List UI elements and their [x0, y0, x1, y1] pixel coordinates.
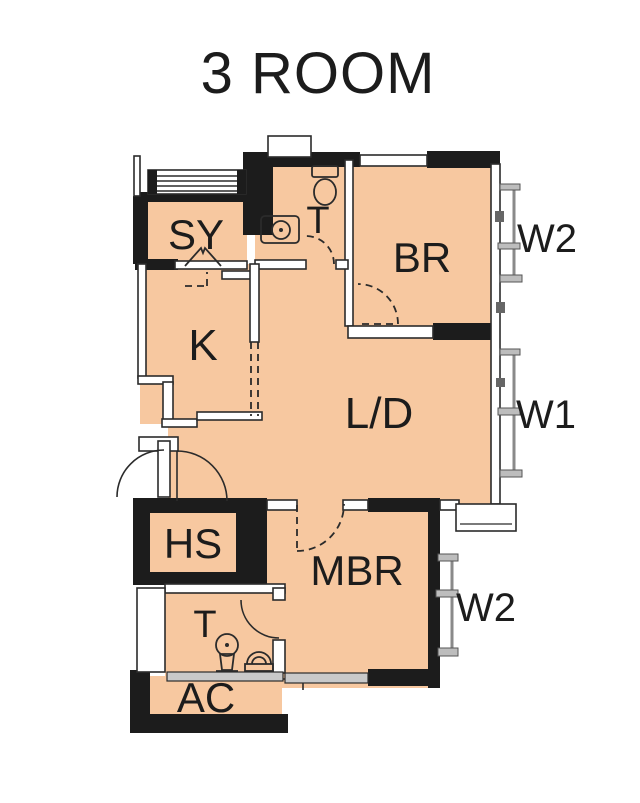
- window-label-w2-top: W2: [517, 217, 577, 261]
- entrance-outswing-arc: [117, 450, 164, 497]
- plan-title: 3 ROOM: [201, 41, 436, 106]
- window-label-w2-bottom: W2: [456, 586, 516, 630]
- room-label-kitchen: K: [188, 321, 217, 370]
- closet-box: [137, 588, 165, 672]
- room-label-toilet-bottom: T: [193, 604, 216, 646]
- room-label-hose-reel: HS: [164, 520, 222, 567]
- room-label-ac: AC: [177, 674, 235, 721]
- floor-plan-page: 3 ROOM SY T BR K L/D HS MBR T AC W2 W1 W…: [0, 0, 640, 803]
- room-label-toilet-top: T: [306, 200, 329, 242]
- room-label-bedroom: BR: [393, 234, 451, 281]
- room-label-sy: SY: [168, 211, 224, 258]
- high-window-box: [268, 136, 311, 157]
- room-label-living-dining: L/D: [345, 389, 413, 438]
- window-label-w1: W1: [516, 393, 576, 437]
- ac-ledge-box: [456, 504, 516, 531]
- room-label-master-bedroom: MBR: [310, 547, 403, 594]
- floor-plan-drawing: 3 ROOM SY T BR K L/D HS MBR T AC W2 W1 W…: [0, 0, 640, 803]
- floor-entry: [168, 420, 258, 510]
- louvre-window: [134, 156, 246, 196]
